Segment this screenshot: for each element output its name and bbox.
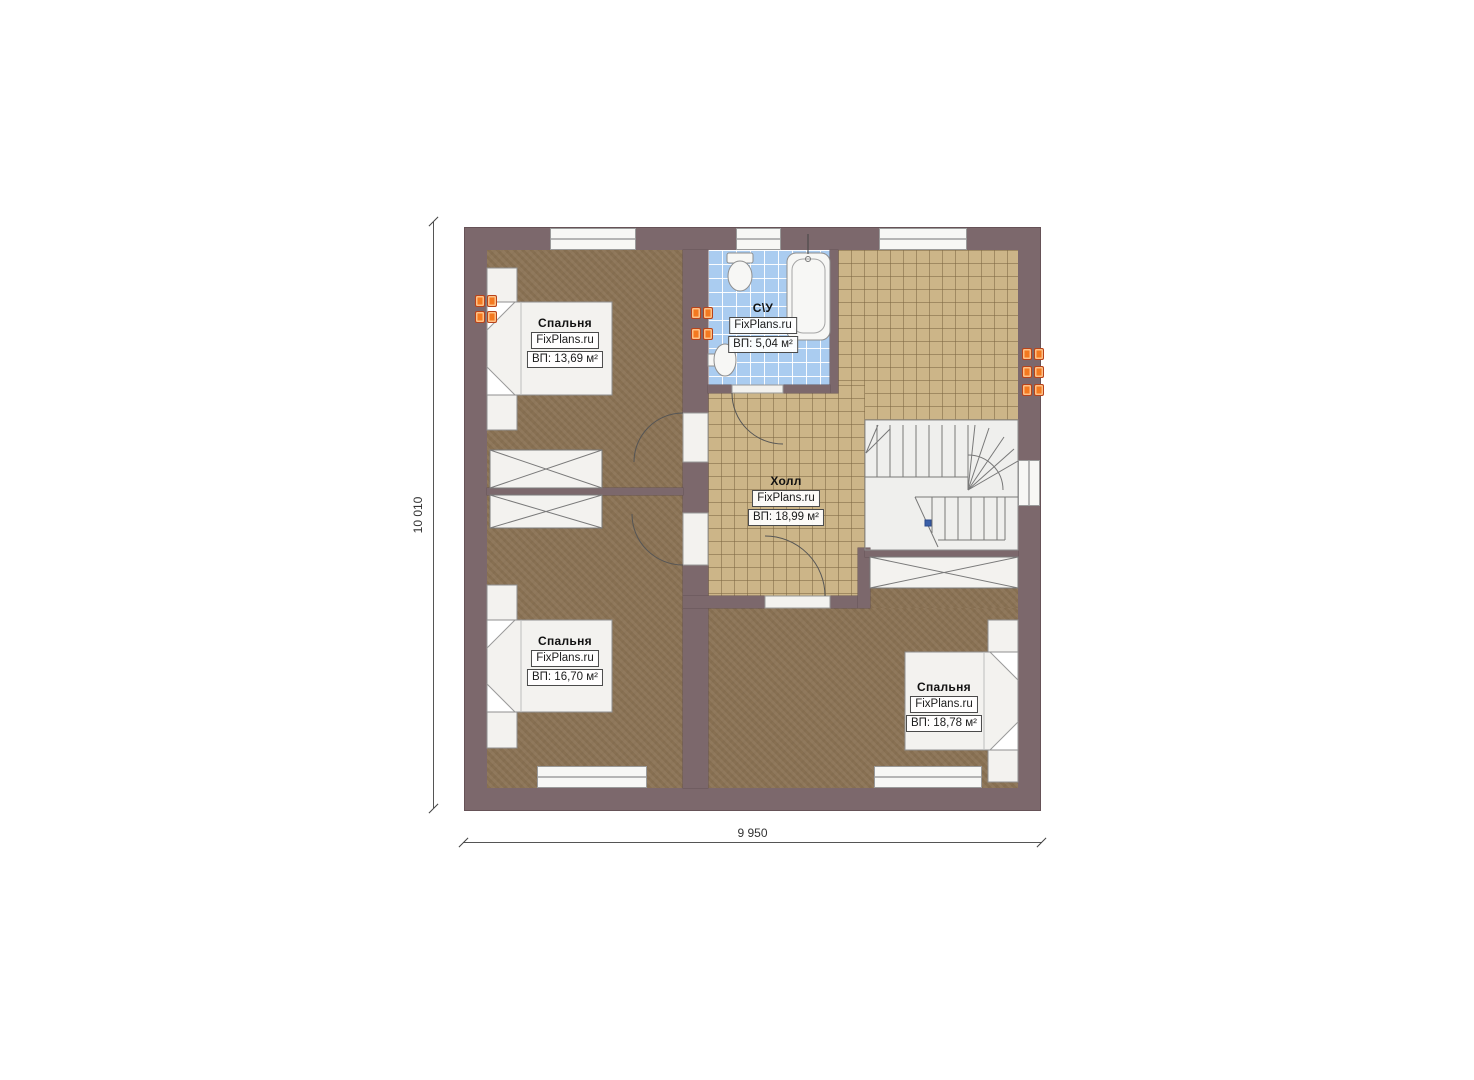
- window: [550, 228, 636, 250]
- dimension-horizontal-label: 9 950: [737, 826, 767, 840]
- radiator-icon: [1022, 384, 1044, 396]
- radiator-icon: [1022, 366, 1044, 378]
- room-label-bedroom-bottom-left: Спальня FixPlans.ru ВП: 16,70 м²: [527, 634, 603, 686]
- floor-bedroom-bottom-right-upper: [870, 588, 1018, 608]
- wall-segment: [487, 488, 683, 495]
- room-label-hall: Холл FixPlans.ru ВП: 18,99 м²: [748, 474, 824, 526]
- room-name: Спальня: [917, 680, 971, 694]
- room-brand: FixPlans.ru: [531, 332, 599, 349]
- radiator-icon: [1022, 348, 1044, 360]
- window: [879, 228, 967, 250]
- window: [1018, 460, 1040, 506]
- floor-stairs: [865, 420, 1018, 550]
- room-area: ВП: 18,99 м²: [748, 509, 824, 526]
- room-name: Спальня: [538, 634, 592, 648]
- wall-segment: [830, 250, 838, 393]
- dimension-vertical: 10 010: [425, 222, 443, 808]
- window: [537, 766, 647, 788]
- radiator-icon: [691, 307, 713, 319]
- room-brand: FixPlans.ru: [531, 650, 599, 667]
- floor-landing: [838, 250, 1018, 420]
- dimension-vertical-label: 10 010: [411, 497, 425, 534]
- wall-segment: [858, 548, 870, 608]
- floor-bedroom-top-left: [487, 250, 683, 488]
- room-brand: FixPlans.ru: [752, 490, 820, 507]
- room-brand: FixPlans.ru: [729, 317, 797, 334]
- room-name: Спальня: [538, 316, 592, 330]
- canvas: Спальня FixPlans.ru ВП: 13,69 м² С\У Fix…: [0, 0, 1474, 1080]
- window: [736, 228, 781, 250]
- room-area: ВП: 18,78 м²: [906, 715, 982, 732]
- room-label-bathroom: С\У FixPlans.ru ВП: 5,04 м²: [728, 301, 798, 353]
- room-name: С\У: [753, 301, 773, 315]
- wall-segment: [683, 596, 765, 608]
- room-name: Холл: [770, 474, 801, 488]
- dimension-horizontal: 9 950: [463, 836, 1042, 850]
- room-brand: FixPlans.ru: [910, 696, 978, 713]
- room-label-bedroom-top-left: Спальня FixPlans.ru ВП: 13,69 м²: [527, 316, 603, 368]
- window: [874, 766, 982, 788]
- radiator-icon: [691, 328, 713, 340]
- radiator-icon: [475, 295, 497, 307]
- room-area: ВП: 16,70 м²: [527, 669, 603, 686]
- radiator-icon: [475, 311, 497, 323]
- wall-segment: [708, 385, 732, 393]
- wall-segment: [865, 550, 1018, 557]
- closet-icon: [870, 557, 1018, 588]
- wall-segment: [683, 462, 708, 513]
- floor-plan: Спальня FixPlans.ru ВП: 13,69 м² С\У Fix…: [465, 228, 1040, 810]
- room-area: ВП: 13,69 м²: [527, 351, 603, 368]
- room-label-bedroom-bottom-right: Спальня FixPlans.ru ВП: 18,78 м²: [906, 680, 982, 732]
- room-area: ВП: 5,04 м²: [728, 336, 798, 353]
- wall-segment: [783, 385, 830, 393]
